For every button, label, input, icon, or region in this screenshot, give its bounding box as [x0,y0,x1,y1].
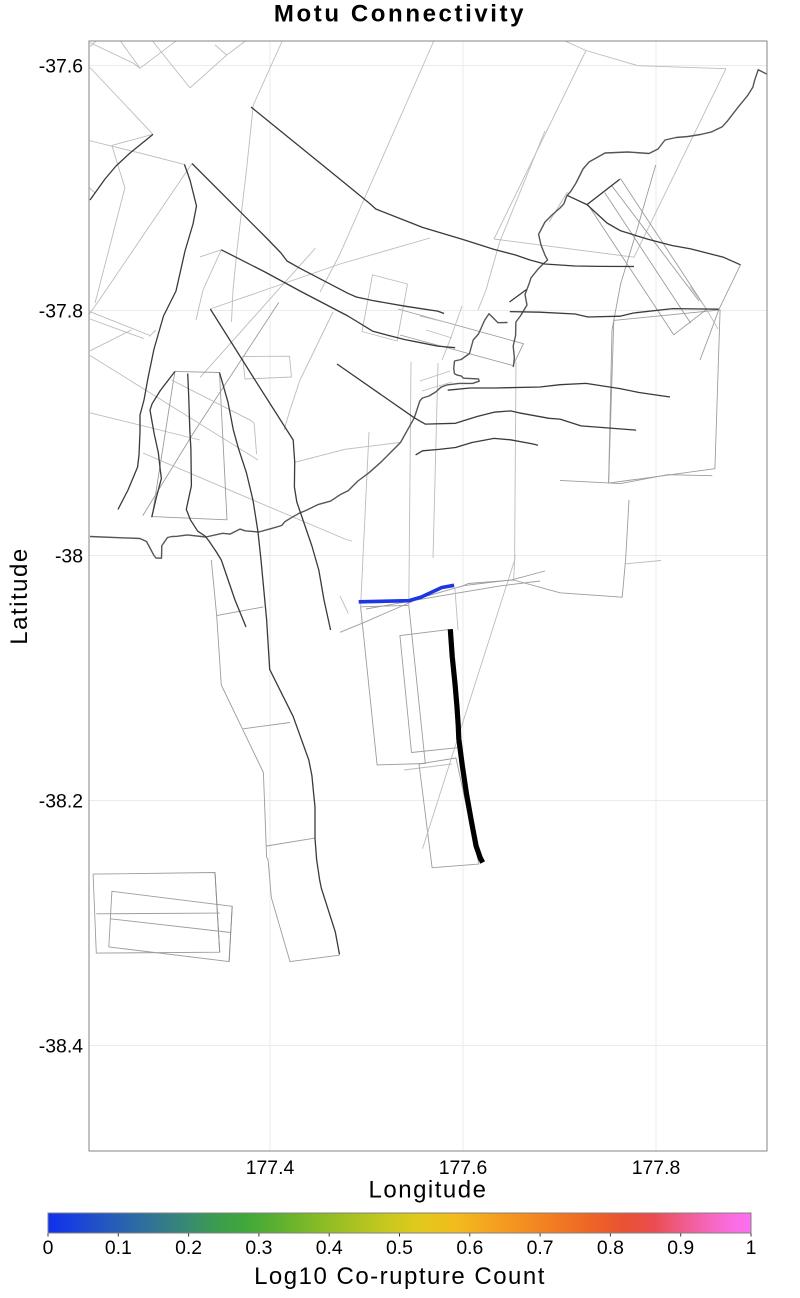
svg-text:Longitude: Longitude [369,1177,488,1204]
svg-text:0.6: 0.6 [456,1237,483,1259]
svg-text:0.5: 0.5 [386,1237,413,1259]
svg-text:0.3: 0.3 [245,1237,272,1259]
svg-text:0.1: 0.1 [105,1237,132,1259]
svg-text:Log10 Co-rupture Count: Log10 Co-rupture Count [254,1263,546,1290]
svg-text:Motu Connectivity: Motu Connectivity [274,1,526,28]
svg-text:177.8: 177.8 [632,1157,681,1179]
svg-text:0.2: 0.2 [175,1237,202,1259]
svg-text:-38.2: -38.2 [39,790,83,812]
svg-text:177.4: 177.4 [246,1157,295,1179]
svg-text:-37.8: -37.8 [39,300,83,322]
svg-text:0.7: 0.7 [527,1237,554,1259]
svg-text:0.8: 0.8 [597,1237,624,1259]
svg-text:-37.6: -37.6 [39,55,83,77]
svg-text:-38.4: -38.4 [39,1035,83,1057]
svg-text:Latitude: Latitude [6,547,33,644]
svg-text:0.4: 0.4 [316,1237,343,1259]
svg-text:1: 1 [746,1237,757,1259]
svg-text:0: 0 [43,1237,54,1259]
svg-text:0.9: 0.9 [667,1237,694,1259]
svg-text:-38: -38 [55,545,83,567]
